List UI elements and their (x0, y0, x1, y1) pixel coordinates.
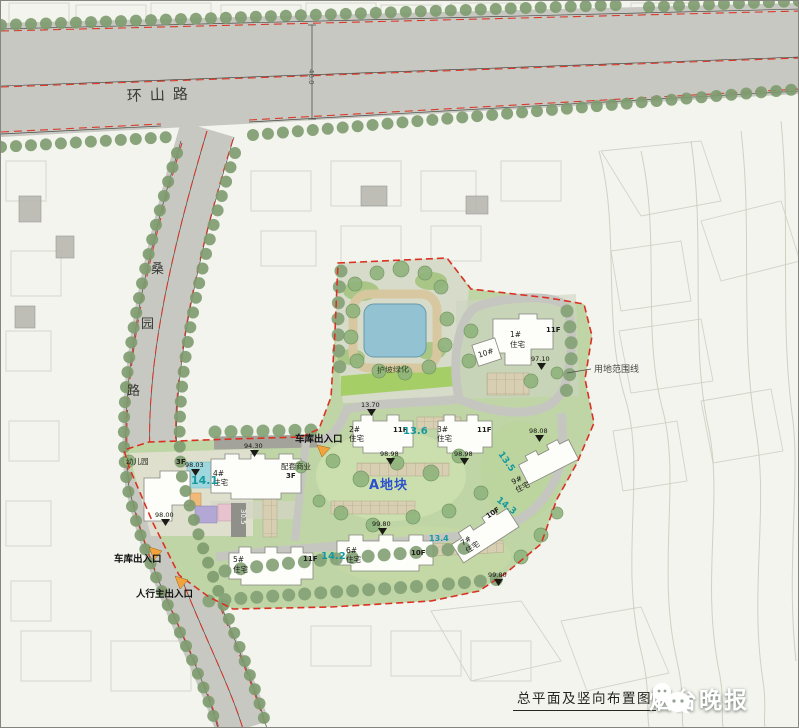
grade-1: 14.1 (191, 474, 218, 487)
building-6-floors: 10F (411, 549, 426, 557)
elev-7: 98.98 (454, 450, 473, 458)
elev-8: 98.08 (529, 427, 548, 435)
west-road-char-3: 路 (127, 383, 140, 399)
site-plan-canvas: 40.0 环山路 桑 园 路 1# 住宅 11F 2# 住宅 11F 3# 住宅… (0, 0, 799, 728)
building-1-type: 住宅 (510, 339, 525, 349)
garage-entrance-north-label: 车库出入口 (295, 433, 343, 445)
retaining-dim-label: 30.5 (239, 509, 247, 525)
garage-entrance-south-label: 车库出入口 (114, 553, 162, 565)
building-5-floors: 11F (303, 555, 318, 563)
kindergarten-label: 幼儿园 (126, 456, 149, 466)
building-1-floors: 11F (546, 326, 561, 334)
elev-6: 98.98 (380, 450, 399, 458)
grade-4: 14.2 (321, 551, 346, 562)
grade-6: 13.4 (429, 534, 449, 543)
west-road-char-2: 园 (141, 317, 154, 332)
drawing-caption: 总平面及竖向布置图 (513, 687, 656, 711)
west-road-char-1: 桑 (151, 262, 164, 277)
commercial-label: 配套商业 (281, 461, 311, 471)
building-2-type: 住宅 (349, 433, 364, 443)
plot-a-label: A地块 (369, 477, 408, 493)
building-6-no: 6# (346, 546, 357, 555)
building-3-no: 3# (437, 425, 448, 434)
pedestrian-entrance-label: 人行主出入口 (136, 588, 193, 600)
north-road-label: 环山路 (127, 85, 197, 105)
building-3-floors: 11F (477, 426, 492, 434)
elev-10: 99.80 (488, 571, 507, 579)
boundary-line-label: 用地范围线 (594, 363, 639, 375)
building-1-no: 1# (510, 330, 521, 339)
elev-1: 13.70 (361, 401, 380, 409)
elev-2: 94.30 (244, 442, 263, 450)
building-5-no: 5# (233, 555, 244, 564)
grade-2: 13.6 (403, 426, 428, 437)
slope-greenery-label: 护坡绿化 (377, 364, 409, 375)
building-2-no: 2# (349, 425, 360, 434)
elev-4: 98.00 (155, 511, 174, 519)
elev-5: 97.10 (531, 355, 550, 363)
map-svg: 40.0 环山路 桑 园 路 1# 住宅 11F 2# 住宅 11F 3# 住宅… (1, 1, 799, 728)
watermark: 烟台晚报 (649, 681, 749, 715)
building-6-type: 住宅 (346, 554, 361, 564)
contour-lines (599, 121, 796, 727)
building-5-type: 住宅 (233, 564, 248, 574)
elev-9: 99.80 (372, 520, 391, 528)
building-3-type: 住宅 (437, 433, 452, 443)
elev-3: 98.03 (185, 461, 204, 469)
road-width-label: 40.0 (307, 69, 315, 85)
commercial-floors: 3F (286, 472, 296, 480)
wechat-icon (649, 681, 693, 715)
